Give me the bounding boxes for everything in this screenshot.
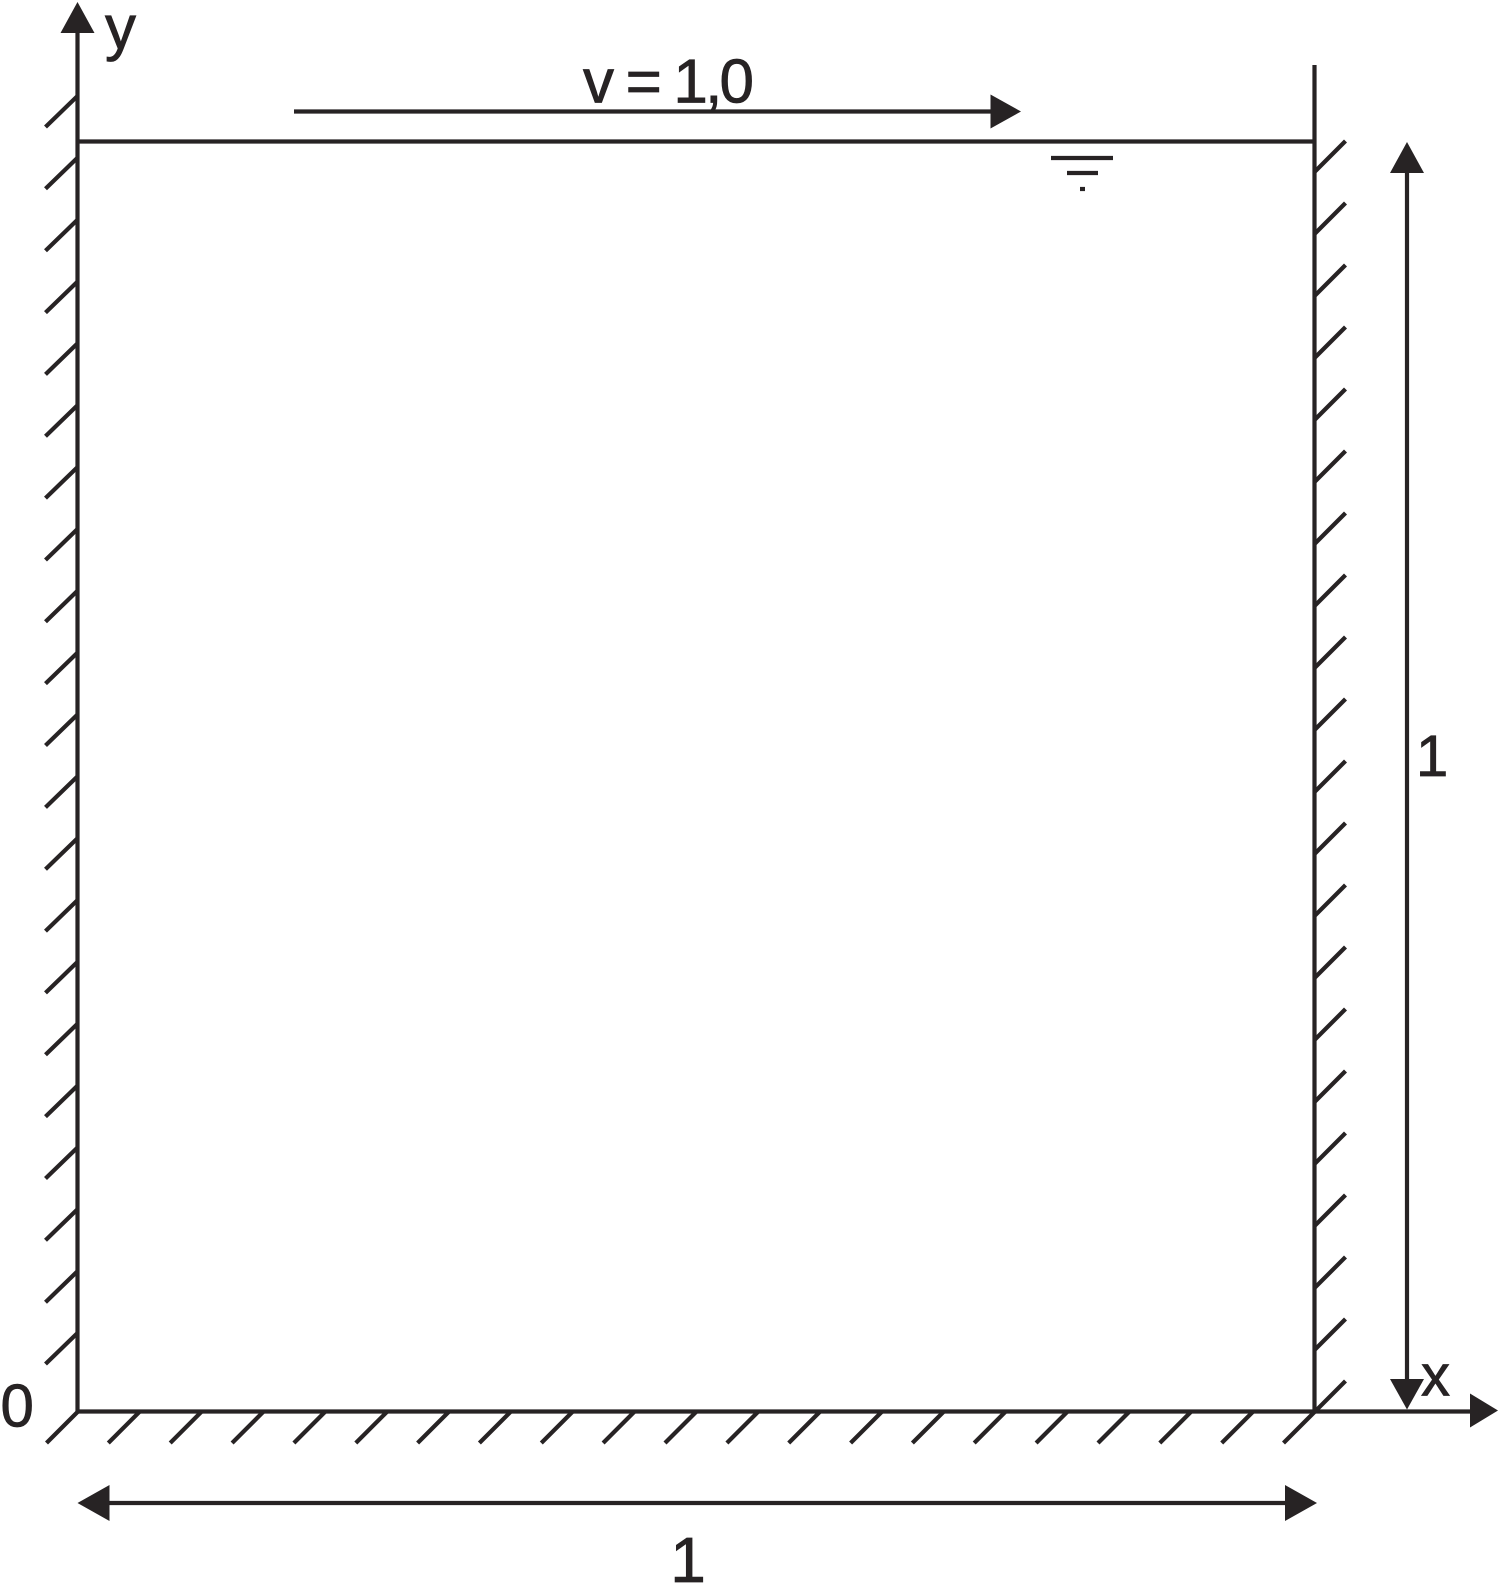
svg-text:y: y — [105, 0, 136, 63]
svg-text:v = 1,0: v = 1,0 — [583, 48, 754, 117]
svg-text:1: 1 — [670, 1524, 706, 1593]
svg-text:1: 1 — [1416, 724, 1448, 789]
svg-text:0: 0 — [1, 1373, 34, 1440]
svg-text:x: x — [1421, 1344, 1450, 1409]
